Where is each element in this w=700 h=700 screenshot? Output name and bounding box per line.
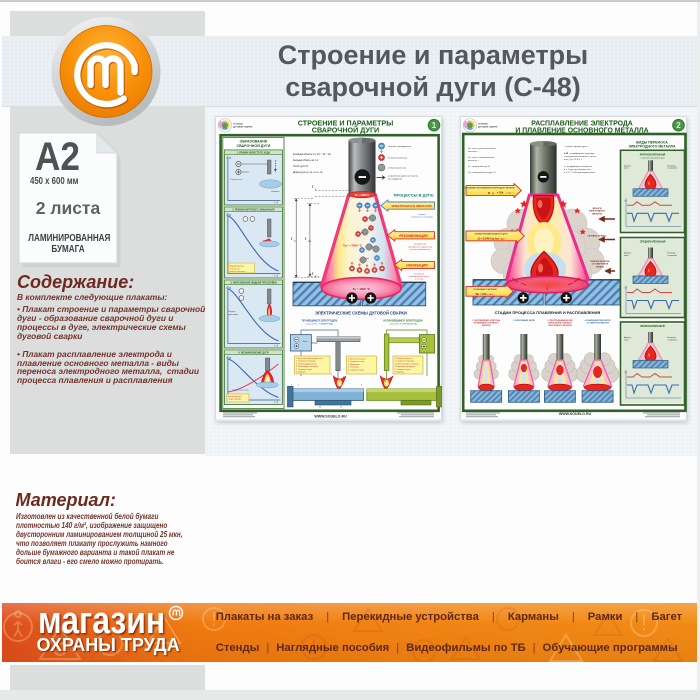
- svg-text:5. Сварочная дуга: 5. Сварочная дуга: [296, 369, 313, 371]
- svg-text:0,24 - коэффициент перевода: 0,24 - коэффициент перевода: [564, 152, 595, 155]
- svg-text:ℓ: ℓ: [290, 236, 292, 241]
- svg-text:ИОНИЗАЦИЯ: ИОНИЗАЦИЯ: [406, 264, 428, 268]
- svg-text:1. Источник питания: 1. Источник питания: [348, 359, 366, 361]
- svg-text:3. Держатель: 3. Держатель: [348, 364, 360, 366]
- svg-text:ЭЛЕКТРОДНОГО МЕТАЛЛА: ЭЛЕКТРОДНОГО МЕТАЛЛА: [628, 145, 675, 149]
- svg-text:МЕТАЛЛА: МЕТАЛЛА: [592, 212, 602, 215]
- svg-text:МЕТАЛЛА: МЕТАЛЛА: [481, 324, 490, 327]
- svg-text:ДУГОВОЙ СВАРКИ: ДУГОВОЙ СВАРКИ: [233, 125, 253, 128]
- svg-text:ВАННЫ: ВАННЫ: [596, 265, 604, 268]
- svg-text:с коротким замыканием дуги: с коротким замыканием дуги: [640, 157, 664, 159]
- svg-text:ПРОЦЕССЫ В ДУГЕ:: ПРОЦЕССЫ В ДУГЕ:: [393, 193, 434, 198]
- svg-text:Gн - масса наплавленного: Gн - масса наплавленного: [468, 157, 495, 159]
- svg-text:ПЛАВЯЩИМСЯ ЭЛЕКТРОДОМ: ПЛАВЯЩИМСЯ ЭЛЕКТРОДОМ: [301, 320, 337, 323]
- svg-text:ОСНОВЫ: ОСНОВЫ: [233, 124, 243, 126]
- svg-text:5: 5: [343, 377, 344, 379]
- svg-text:2: 2: [298, 385, 299, 387]
- svg-text:ЭЛЕКТРОДНОГО: ЭЛЕКТРОДНОГО: [588, 211, 605, 213]
- svg-text:(способ Н.Г. СЛАВЯНОВА): (способ Н.Г. СЛАВЯНОВА): [306, 323, 333, 326]
- svg-text:3. ОБРАЗОВАНИЕ ЖИДКОЙ ПРОСЛОЙК: 3. ОБРАЗОВАНИЕ ЖИДКОЙ ПРОСЛОЙКИ: [230, 281, 277, 284]
- svg-text:ОСНОВЫ: ОСНОВЫ: [478, 124, 488, 126]
- svg-text:частиц в нейтральные: частиц в нейтральные: [409, 248, 431, 251]
- svg-text:I, А: I, А: [274, 345, 278, 348]
- svg-text:металла, г: металла, г: [468, 151, 479, 153]
- svg-text:Тк = 4000 °С: Тк = 4000 °С: [352, 287, 370, 291]
- svg-text:4. Электрод: 4. Электрод: [348, 367, 359, 369]
- svg-text:и частиц: и частиц: [414, 279, 423, 281]
- svg-text:(способ Н.Н. БЕНАРДОСА): (способ Н.Н. БЕНАРДОСА): [389, 323, 417, 326]
- svg-text:t - время горения дуги, ч: t - время горения дуги, ч: [564, 145, 589, 148]
- svg-text:2. ОБРАЗОВАНИЕ КАПЛИ: 2. ОБРАЗОВАНИЕ КАПЛИ: [512, 319, 535, 322]
- svg-text:электрически заряженных: электрически заряженных: [407, 246, 431, 248]
- svg-text:ДУГОВОЙ СВАРКИ: ДУГОВОЙ СВАРКИ: [478, 125, 498, 128]
- svg-text:Выделяющаяся: Выделяющаяся: [229, 266, 244, 268]
- svg-text:боковая: боковая: [418, 214, 426, 216]
- svg-text:вые ( Дж / В·А·с ): вые ( Дж / В·А·с ): [564, 158, 582, 161]
- svg-text:КОЭФФИЦИЕНТ НАПЛАВКИ: КОЭФФИЦИЕНТ НАПЛАВКИ: [473, 288, 497, 291]
- svg-text:Длина дуги ℓд = ℓк + ℓст + ℓа: Длина дуги ℓд = ℓк + ℓст + ℓа: [293, 171, 323, 174]
- svg-text:капли: капли: [624, 255, 629, 257]
- svg-text:7: 7: [291, 385, 292, 387]
- svg-text:с покрытием: с покрытием: [667, 255, 678, 257]
- svg-text:6: 6: [361, 385, 362, 387]
- svg-text:3. Электрододержатель: 3. Электрододержатель: [296, 363, 317, 365]
- svg-text:Uд - напряжение на дуге, В: Uд - напряжение на дуге, В: [468, 172, 496, 174]
- svg-text:2. Сварочная цепь: 2. Сварочная цепь: [348, 361, 364, 363]
- svg-text:6. Изделие: 6. Изделие: [296, 372, 306, 374]
- svg-text:1: 1: [431, 121, 436, 130]
- svg-text:I, А: I, А: [274, 401, 278, 404]
- svg-text:Анодная область ℓа = ℓк: Анодная область ℓа = ℓк: [293, 159, 319, 162]
- svg-text:направление движения частиц: направление движения частиц: [388, 176, 419, 178]
- svg-text:1. РЕЖИМ ХОЛОСТОГО ХОДА: 1. РЕЖИМ ХОЛОСТОГО ХОДА: [236, 151, 270, 154]
- svg-text:БРЫЗГИ: БРЫЗГИ: [592, 208, 601, 210]
- svg-text:РАСПЛАВЛЕНИЕ ЭЛЕКТРОДА: РАСПЛАВЛЕНИЕ ЭЛЕКТРОДА: [531, 121, 633, 128]
- svg-text:СВАРОЧНОЙ ДУГИ: СВАРОЧНОЙ ДУГИ: [236, 144, 270, 148]
- svg-text:СО СВАРОЧНОЙ ВАННОЙ: СО СВАРОЧНОЙ ВАННОЙ: [586, 321, 609, 324]
- svg-text:2. Сварочные провода: 2. Сварочные провода: [296, 361, 317, 363]
- svg-text:Gр - масса расплавленного: Gр - масса расплавленного: [468, 148, 496, 150]
- svg-text:металла, г: металла, г: [468, 160, 479, 162]
- svg-text:Истч.: Истч.: [303, 341, 308, 343]
- svg-text:положительных ионов: положительных ионов: [408, 276, 429, 278]
- svg-text:k = 0,7 - 0,95 при переменном: k = 0,7 - 0,95 при переменном: [564, 172, 595, 174]
- svg-text:5. Сварочная дуга: 5. Сварочная дуга: [394, 369, 411, 371]
- svg-text:ЭЛЕКТРОННАЯ ЭМИССИЯ: ЭЛЕКТРОННАЯ ЭМИССИЯ: [391, 204, 432, 208]
- svg-text:с покрытием: с покрытием: [667, 339, 678, 341]
- svg-text:4. ВОЗНИКНОВЕНИЕ ДУГИ: 4. ВОЗНИКНОВЕНИЕ ДУГИ: [238, 351, 269, 354]
- svg-text:СРЕДНЕКАПЕЛЬНЫЙ: СРЕДНЕКАПЕЛЬНЫЙ: [639, 241, 665, 244]
- svg-text:ℓ: ℓ: [311, 184, 313, 189]
- svg-text:2. Сварочные провода: 2. Сварочные провода: [394, 361, 415, 363]
- svg-text:3. Неплавящийся электрод: 3. Неплавящийся электрод: [394, 362, 419, 365]
- svg-text:Iсв - сварочный ток, А: Iсв - сварочный ток, А: [468, 165, 490, 168]
- svg-text:РЕКОМБИНАЦИЯ: РЕКОМБИНАЦИЯ: [399, 234, 428, 238]
- svg-text:WWW.SOUELO.RU: WWW.SOUELO.RU: [314, 415, 347, 419]
- svg-text:5. Сварочная дуга: 5. Сварочная дуга: [348, 369, 365, 371]
- svg-text:Сварочная ванна: Сварочная ванна: [232, 390, 249, 392]
- svg-text:положительный ион: положительный ион: [388, 156, 407, 159]
- svg-text:Изделие: Изделие: [271, 191, 280, 193]
- svg-text:при отдирания: при отдирания: [388, 178, 402, 180]
- svg-text:U, В: U, В: [226, 157, 231, 160]
- svg-text:электрических величин в тепло-: электрических величин в тепло-: [564, 156, 597, 158]
- svg-text:I, А: I, А: [274, 275, 278, 278]
- svg-text:СТАДИИ ПРОЦЕССА ПЛАВЛЕНИЯ И: СТАДИИ ПРОЦЕССА ПЛАВЛЕНИЯ И РАСПЛАВЛЕНИЯ: [494, 310, 600, 315]
- svg-text:k = 1 при постоянном токе: k = 1 при постоянном токе: [564, 169, 591, 171]
- svg-text:прослойка: прослойка: [228, 313, 239, 316]
- svg-text:участке контакта: участке контакта: [229, 271, 246, 273]
- svg-text:1. Источник питания дуги пост.: 1. Источник питания дуги пост.: [296, 358, 323, 360]
- svg-text:с покрытием: с покрытием: [667, 168, 678, 170]
- svg-text:теплота на: теплота на: [229, 269, 240, 271]
- svg-text:ЭЛЕКТРОДНОГО МЕТАЛЛА: ЭЛЕКТРОДНОГО МЕТАЛЛА: [548, 324, 572, 327]
- svg-text:капли: капли: [624, 168, 629, 170]
- svg-text:Тк = 3000°С: Тк = 3000°С: [354, 193, 369, 197]
- svg-text:НЕПЛАВЯЩИМСЯ ЭЛЕКТРОДОМ: НЕПЛАВЯЩИМСЯ ЭЛЕКТРОДОМ: [383, 320, 422, 323]
- svg-text:Столб дуги ℓст: Столб дуги ℓст: [293, 165, 309, 168]
- svg-text:БРЫЗГИ МЕТАЛЛА: БРЫЗГИ МЕТАЛЛА: [590, 260, 609, 263]
- svg-text:= G/It: = G/It: [496, 191, 503, 195]
- svg-text:2: 2: [676, 121, 681, 130]
- svg-text:Жидкая: Жидкая: [228, 311, 235, 313]
- svg-text:4. Плавящийся электрод: 4. Плавящийся электрод: [296, 365, 319, 368]
- svg-text:k - коэффициент мощности: k - коэффициент мощности: [564, 165, 593, 168]
- svg-text:сварочной дуги: сварочной дуги: [227, 398, 241, 401]
- svg-text:( г/А·ч ): ( г/А·ч ): [506, 192, 514, 195]
- svg-text:6. Изделие: 6. Изделие: [394, 372, 404, 374]
- svg-text:4. Присадочный пруток: 4. Присадочный пруток: [394, 365, 415, 368]
- svg-text:ℓ: ℓ: [311, 271, 313, 276]
- svg-text:поверхность электрода: поверхность электрода: [411, 217, 434, 219]
- svg-text:СВАРОЧНОЙ ДУГИ: СВАРОЧНОЙ ДУГИ: [311, 126, 378, 135]
- svg-text:1. Источник питания: 1. Источник питания: [394, 358, 412, 360]
- svg-text:объединение: объединение: [413, 244, 426, 246]
- svg-text:МЕЛКОКАПЕЛЬНЫЙ: МЕЛКОКАПЕЛЬНЫЙ: [640, 325, 665, 328]
- svg-text:появление: появление: [414, 273, 425, 275]
- svg-text:Тст = 7500 °С: Тст = 7500 °С: [343, 244, 363, 248]
- svg-text:КОЭФФИЦИЕНТ РАСПЛАВЛЕНИЯ ЭЛЕКТ: КОЭФФИЦИЕНТ РАСПЛАВЛЕНИЯ ЭЛЕКТРОДНОГО МЕ…: [463, 186, 515, 189]
- svg-text:ЭЛЕКТРИЧЕСКИЕ СХЕМЫ ДУГОВОЙ СВ: ЭЛЕКТРИЧЕСКИЕ СХЕМЫ ДУГОВОЙ СВАРКИ: [315, 311, 407, 316]
- svg-text:Напряжение: Напряжение: [230, 179, 242, 181]
- svg-text:11: 11: [319, 407, 321, 409]
- svg-text:ПОЛНАЯ ТЕПЛОВАЯ МОЩНОСТЬ ДУГИ: ПОЛНАЯ ТЕПЛОВАЯ МОЩНОСТЬ ДУГИ: [474, 233, 508, 236]
- svg-text:WWW.SOUELO.RU: WWW.SOUELO.RU: [558, 412, 591, 416]
- svg-text:нейтральный атом: нейтральный атом: [388, 166, 407, 169]
- svg-text:КРУПНОКАПЕЛЬНЫЙ: КРУПНОКАПЕЛЬНЫЙ: [639, 153, 665, 156]
- svg-text:I, А: I, А: [274, 202, 278, 205]
- svg-text:электрон проводимости: электрон проводимости: [388, 146, 412, 148]
- svg-text:ℓ: ℓ: [304, 236, 306, 241]
- svg-text:4: 4: [331, 374, 332, 376]
- svg-text:12: 12: [340, 407, 342, 409]
- svg-text:ст: ст: [308, 240, 311, 243]
- svg-text:СО СВАРОЧНОЙ: СО СВАРОЧНОЙ: [591, 263, 608, 266]
- svg-text:капли: капли: [624, 339, 629, 341]
- svg-text:2. РЕЖИМ КОРОТКОГО ЗАМЫКАНИЯ: 2. РЕЖИМ КОРОТКОГО ЗАМЫКАНИЯ: [232, 208, 274, 211]
